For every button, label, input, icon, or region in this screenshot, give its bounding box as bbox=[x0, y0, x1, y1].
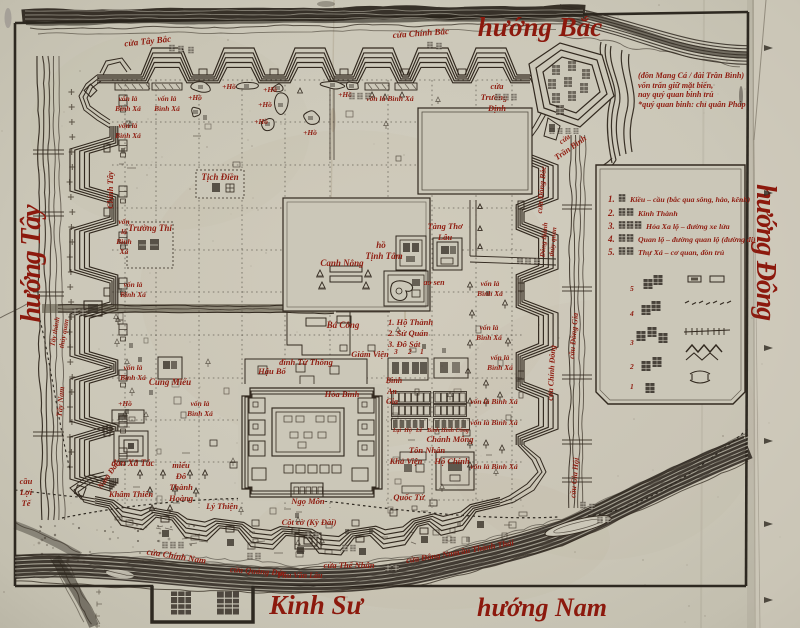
svg-text:2. Sử Quán: 2. Sử Quán bbox=[387, 328, 429, 338]
svg-text:vốn là: vốn là bbox=[119, 121, 138, 130]
svg-text:vốn là: vốn là bbox=[158, 94, 177, 103]
svg-text:Bình Xá: Bình Xá bbox=[114, 104, 141, 113]
svg-text:4.: 4. bbox=[607, 234, 615, 244]
svg-text:Kinh Sư: Kinh Sư bbox=[268, 590, 364, 620]
svg-text:vốn là: vốn là bbox=[191, 399, 210, 408]
svg-text:+Hồ: +Hồ bbox=[263, 85, 277, 94]
svg-text:+Hồ: +Hồ bbox=[258, 100, 272, 109]
svg-text:3: 3 bbox=[393, 347, 398, 356]
svg-text:Định: Định bbox=[487, 103, 506, 113]
svg-text:Chánh Mông: Chánh Mông bbox=[426, 434, 474, 444]
svg-text:vốn là Bình Xá: vốn là Bình Xá bbox=[366, 94, 414, 103]
svg-text:Bình Xá: Bình Xá bbox=[486, 363, 513, 372]
svg-text:vốn là: vốn là bbox=[481, 279, 500, 288]
svg-text:đình Tứ Thông: đình Tứ Thông bbox=[279, 357, 333, 367]
svg-text:2.: 2. bbox=[607, 208, 615, 218]
svg-text:Hoàng: Hoàng bbox=[168, 493, 194, 503]
svg-text:Tàng Thơ: Tàng Thơ bbox=[427, 221, 462, 231]
svg-text:nay quý quan binh trú: nay quý quan binh trú bbox=[638, 90, 714, 99]
svg-text:+Hồ: +Hồ bbox=[188, 93, 202, 102]
svg-text:Tôn Nhân: Tôn Nhân bbox=[409, 445, 445, 455]
svg-text:+Hồ: +Hồ bbox=[254, 117, 268, 126]
svg-text:vốn là: vốn là bbox=[480, 323, 499, 332]
svg-text:Cung Miếu: Cung Miếu bbox=[149, 377, 191, 387]
svg-text:An: An bbox=[386, 387, 397, 396]
svg-text:+Hồ: +Hồ bbox=[222, 82, 236, 91]
svg-text:Khâm Thiên: Khâm Thiên bbox=[108, 489, 153, 499]
svg-text:*quý quan binh: chỉ quân Pháp: *quý quan binh: chỉ quân Pháp bbox=[638, 100, 746, 109]
svg-text:Bình Xá: Bình Xá bbox=[153, 104, 180, 113]
svg-text:Bình Xá: Bình Xá bbox=[119, 373, 146, 382]
svg-text:Giám Viện: Giám Viện bbox=[351, 349, 389, 359]
svg-text:Tế: Tế bbox=[22, 498, 32, 508]
svg-text:(đồn Mang Cá / đài Trần Bình): (đồn Mang Cá / đài Trần Bình) bbox=[638, 71, 744, 80]
svg-text:5.: 5. bbox=[608, 247, 615, 257]
svg-text:vốn trấn giữ mặt biển,: vốn trấn giữ mặt biển, bbox=[638, 81, 713, 90]
svg-text:1: 1 bbox=[630, 382, 634, 391]
svg-text:Kinh Thành: Kinh Thành bbox=[637, 209, 678, 218]
svg-text:1: 1 bbox=[420, 347, 424, 356]
svg-text:Bình Xá: Bình Xá bbox=[114, 131, 141, 140]
svg-text:4: 4 bbox=[629, 309, 634, 318]
svg-text:Bình Xá: Bình Xá bbox=[186, 409, 213, 418]
svg-text:Lễ: Lễ bbox=[415, 427, 423, 434]
svg-text:Ngọ Môn: Ngọ Môn bbox=[290, 496, 325, 506]
svg-text:Quan lộ – đường quan lộ (đường: Quan lộ – đường quan lộ (đường đi) bbox=[638, 235, 756, 244]
svg-text:Đô: Đô bbox=[175, 471, 186, 481]
svg-text:vốn là: vốn là bbox=[124, 280, 143, 289]
svg-text:cửa Thể Nhân: cửa Thể Nhân bbox=[324, 560, 375, 570]
svg-text:Trường Thi: Trường Thi bbox=[128, 223, 172, 233]
svg-text:Lại: Lại bbox=[392, 428, 402, 434]
svg-text:vốn là: vốn là bbox=[491, 353, 510, 362]
svg-text:Bình Xá: Bình Xá bbox=[475, 333, 502, 342]
svg-text:là: là bbox=[121, 227, 127, 236]
svg-text:+Hồ: +Hồ bbox=[118, 399, 132, 408]
svg-text:hồ: hồ bbox=[376, 240, 386, 250]
svg-text:cửa: cửa bbox=[490, 81, 504, 91]
svg-text:Gia: Gia bbox=[386, 397, 398, 406]
svg-text:vốn là: vốn là bbox=[124, 363, 143, 372]
svg-text:2: 2 bbox=[629, 362, 634, 371]
svg-text:Tịnh Tâm: Tịnh Tâm bbox=[365, 251, 402, 261]
svg-text:vốn là Bình Xá: vốn là Bình Xá bbox=[470, 397, 518, 406]
svg-text:Cột cờ (Kỳ Đài): Cột cờ (Kỳ Đài) bbox=[282, 517, 337, 527]
svg-text:Khả Viện: Khả Viện bbox=[389, 456, 423, 466]
svg-text:1.: 1. bbox=[608, 194, 615, 204]
svg-text:3. Đô Sát: 3. Đô Sát bbox=[387, 339, 421, 349]
svg-text:Hộ Chính: Hộ Chính bbox=[433, 456, 469, 466]
svg-text:Kiều – cầu (bắc qua sông, hào,: Kiều – cầu (bắc qua sông, hào, kênh) bbox=[629, 195, 751, 204]
svg-text:2: 2 bbox=[407, 347, 412, 356]
svg-text:Tịch Điền: Tịch Điền bbox=[201, 172, 238, 182]
svg-text:Hậu Bổ: Hậu Bổ bbox=[257, 366, 286, 376]
svg-text:3.: 3. bbox=[607, 221, 615, 231]
svg-text:Phu Văn Lâu: Phu Văn Lâu bbox=[278, 571, 323, 580]
svg-text:Bình Xá: Bình Xá bbox=[476, 289, 503, 298]
svg-text:Lâu: Lâu bbox=[437, 232, 452, 242]
svg-text:Bình: Bình bbox=[115, 237, 131, 246]
svg-text:Hộ: Hộ bbox=[403, 428, 412, 434]
svg-text:Bình Xá: Bình Xá bbox=[119, 290, 146, 299]
svg-text:Lợi: Lợi bbox=[19, 487, 33, 497]
svg-text:Xá: Xá bbox=[119, 247, 129, 256]
svg-text:vốn là: vốn là bbox=[119, 94, 138, 103]
svg-text:vốn là Bình Xá: vốn là Bình Xá bbox=[470, 462, 518, 471]
svg-text:ao sen: ao sen bbox=[423, 278, 445, 287]
svg-text:Canh Nông: Canh Nông bbox=[320, 258, 364, 268]
svg-text:Chính Tây: Chính Tây bbox=[105, 171, 115, 209]
svg-text:Quốc Tử: Quốc Tử bbox=[393, 492, 425, 502]
svg-text:Bình: Bình bbox=[385, 376, 403, 385]
svg-text:Hòa Bình: Hòa Bình bbox=[324, 389, 360, 399]
svg-text:miếu: miếu bbox=[172, 460, 190, 470]
svg-text:hướng Tây: hướng Tây bbox=[16, 204, 47, 322]
svg-text:5: 5 bbox=[630, 284, 634, 293]
svg-text:Bá Công: Bá Công bbox=[326, 320, 360, 330]
svg-text:+Hồ: +Hồ bbox=[303, 128, 317, 137]
svg-text:vốn là Bình Xá: vốn là Bình Xá bbox=[470, 418, 518, 427]
svg-text:Lý Thiện: Lý Thiện bbox=[205, 501, 238, 511]
svg-text:hướng Bắc: hướng Bắc bbox=[478, 12, 602, 42]
svg-text:Hỏa Xa lộ – đường xe lửa: Hỏa Xa lộ – đường xe lửa bbox=[645, 222, 730, 231]
svg-text:Thự Xá – cơ quan, đồn trú: Thự Xá – cơ quan, đồn trú bbox=[638, 248, 725, 257]
svg-text:hướng Nam: hướng Nam bbox=[477, 593, 607, 622]
svg-text:1. Hộ Thành: 1. Hộ Thành bbox=[388, 317, 433, 327]
svg-text:Thành: Thành bbox=[169, 482, 193, 492]
svg-text:cầu: cầu bbox=[20, 476, 33, 486]
svg-text:3: 3 bbox=[629, 338, 634, 347]
